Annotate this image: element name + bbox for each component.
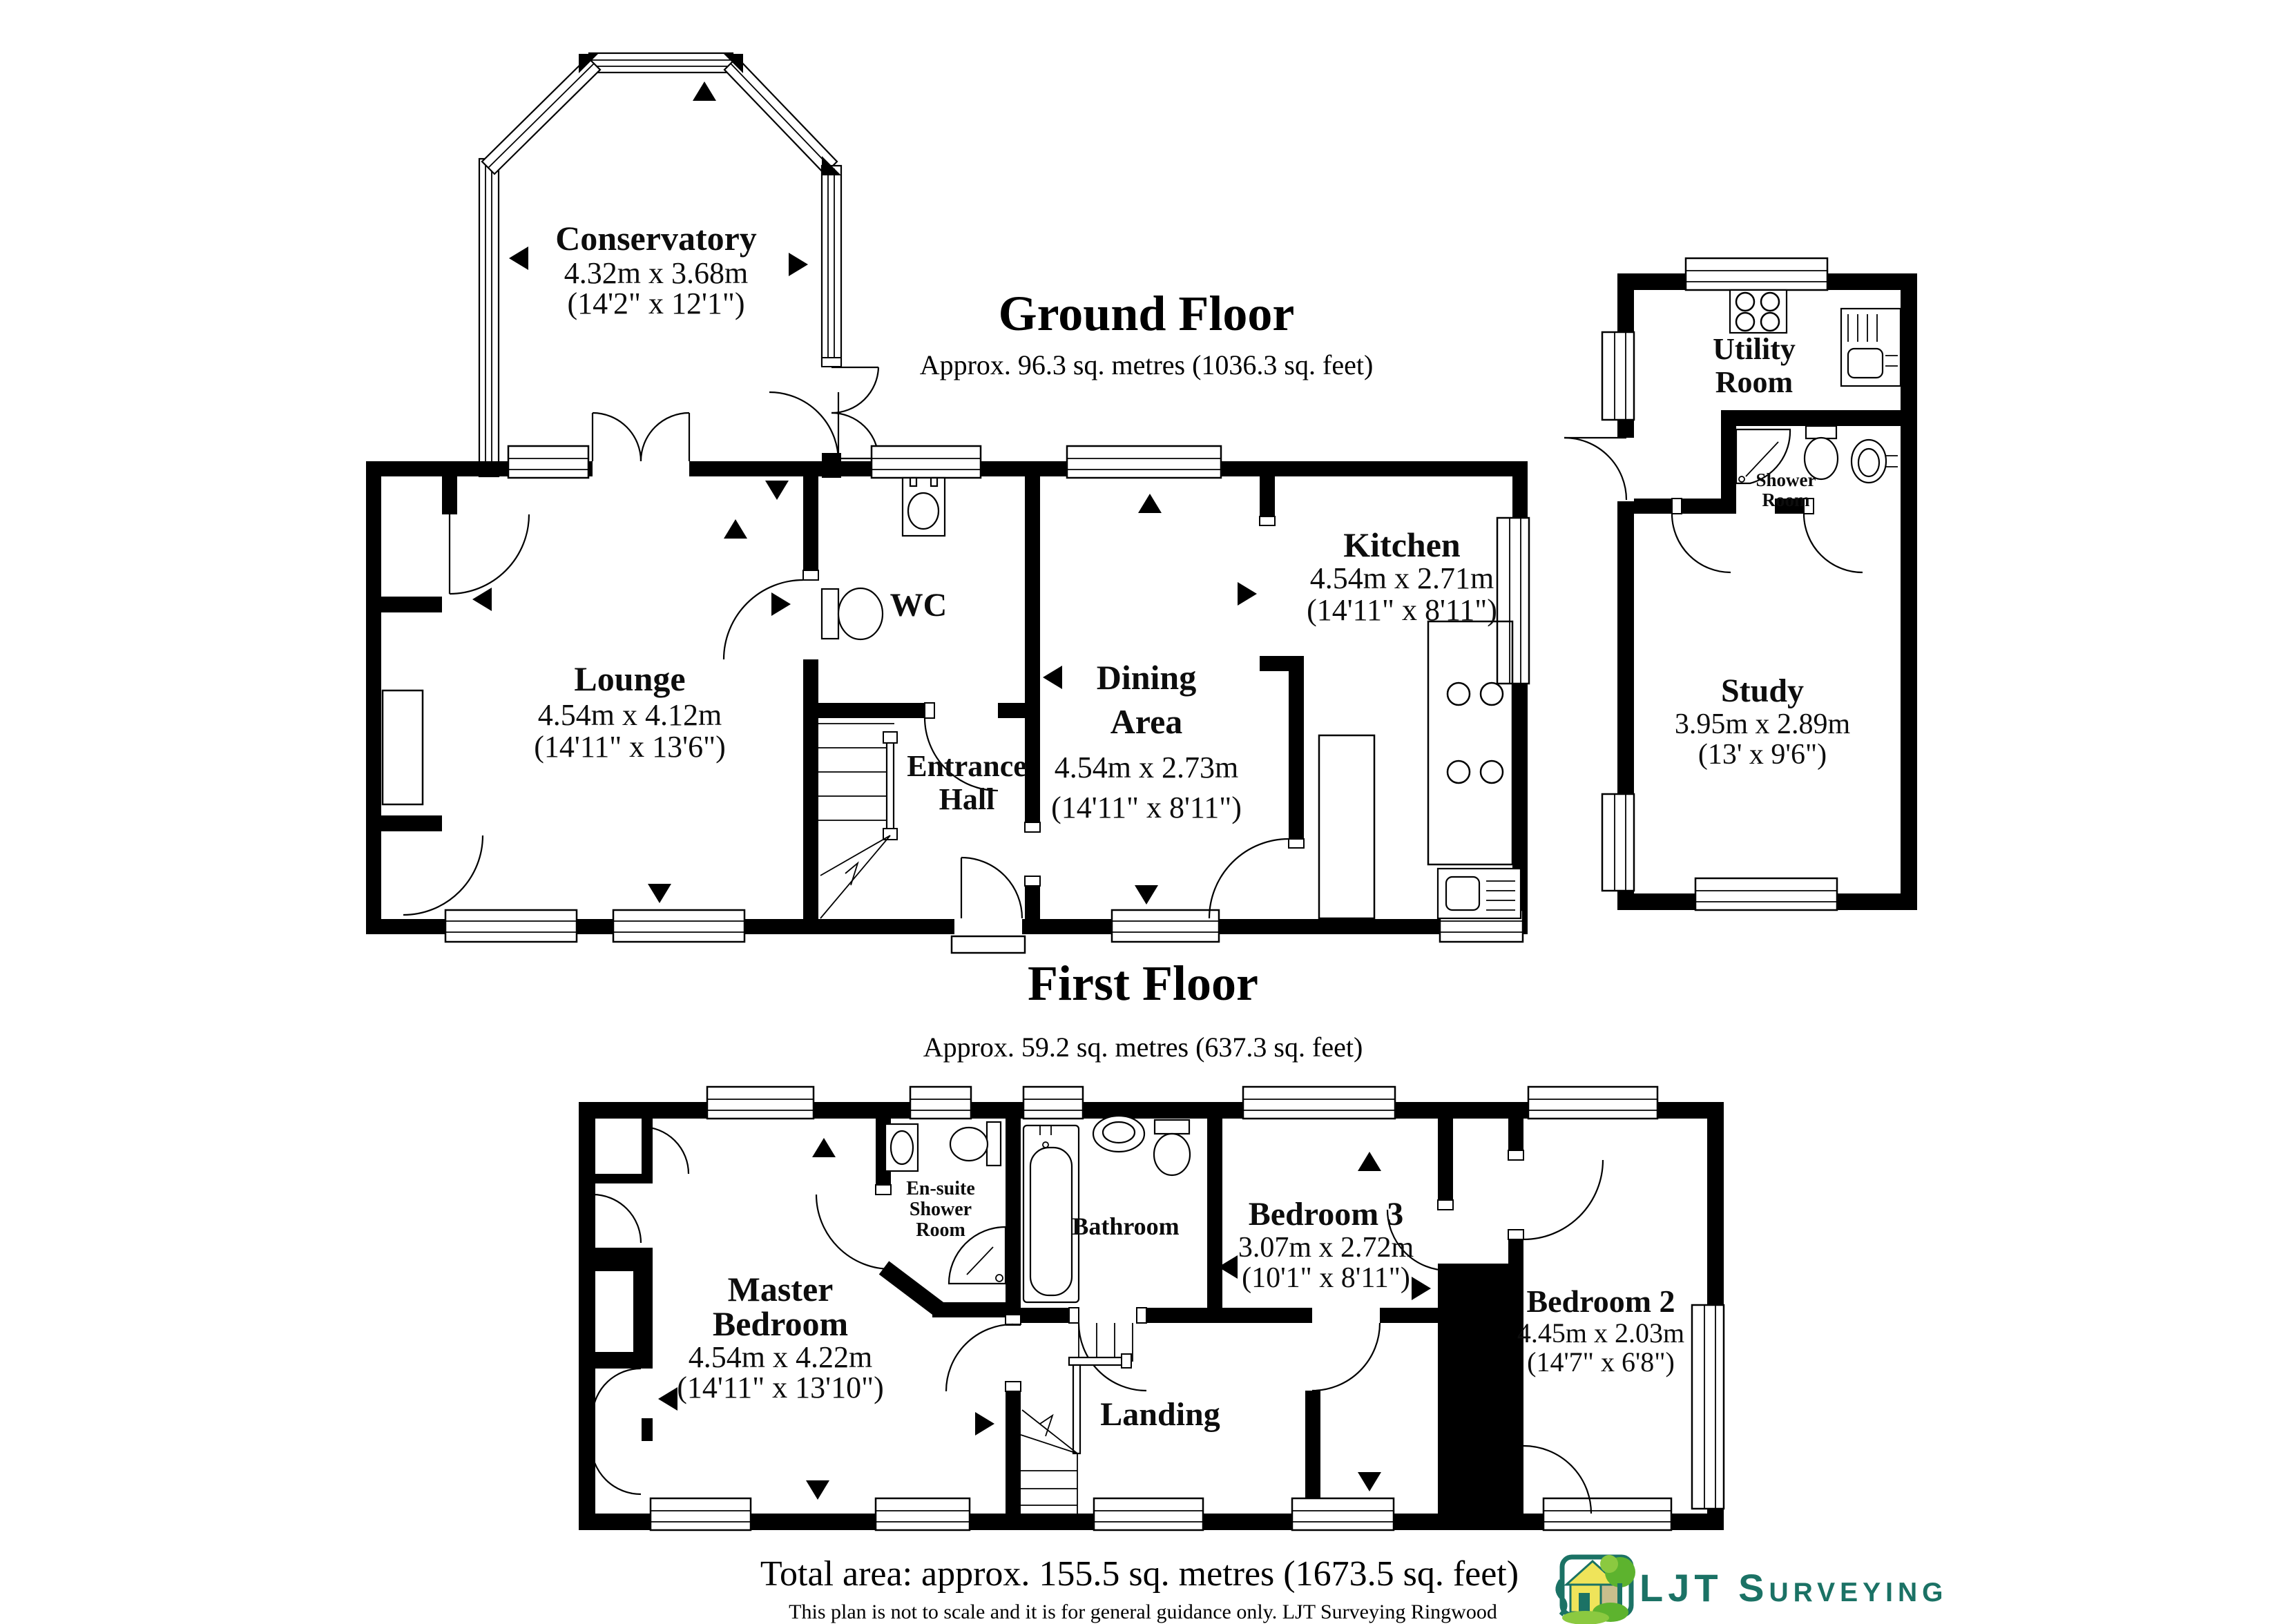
bedroom2-door-arc — [1523, 1160, 1603, 1239]
svg-text:Study: Study — [1721, 673, 1804, 709]
floorplan-drawing: Conservatory 4.32m x 3.68m (14'2" x 12'1… — [0, 0, 2279, 1624]
utility-hob-icon — [1730, 290, 1787, 333]
room-label-bedroom2: Bedroom 2 4.45m x 2.03m (14'7" x 6'8") — [1517, 1284, 1684, 1377]
room-label-master: Master Bedroom 4.54m x 4.22m (14'11" x 1… — [677, 1270, 883, 1404]
svg-text:(14'11" x 8'11"): (14'11" x 8'11") — [1307, 593, 1497, 627]
svg-text:Landing: Landing — [1100, 1396, 1220, 1433]
room-label-bedroom3: Bedroom 3 3.07m x 2.72m (10'1" x 8'11") — [1238, 1196, 1414, 1294]
room-label-utility: Utility Room — [1713, 332, 1796, 399]
svg-text:Master: Master — [728, 1270, 834, 1308]
svg-text:WC: WC — [890, 587, 948, 623]
svg-text:Room: Room — [916, 1219, 965, 1241]
kitchen-door-arc — [1209, 839, 1289, 918]
room-label-bathroom: Bathroom — [1072, 1212, 1179, 1240]
logo-door — [1579, 1593, 1590, 1612]
lounge-furniture — [383, 690, 423, 804]
room-label-shower-room: Shower Room — [1756, 470, 1816, 510]
svg-text:4.32m x 3.68m: 4.32m x 3.68m — [564, 256, 748, 290]
svg-text:Shower: Shower — [910, 1199, 972, 1220]
room-label-landing: Landing — [1100, 1396, 1220, 1433]
hob-icon — [1448, 683, 1503, 783]
svg-text:4.54m x 4.12m: 4.54m x 4.12m — [538, 698, 722, 732]
svg-text:Kitchen: Kitchen — [1343, 525, 1461, 564]
kitchen-counter — [1319, 621, 1521, 918]
ground-floor: Conservatory 4.32m x 3.68m (14'2" x 12'1… — [366, 53, 1917, 953]
svg-text:Bedroom 3: Bedroom 3 — [1249, 1196, 1403, 1232]
master-door-arc — [946, 1324, 1013, 1391]
svg-text:Conservatory: Conservatory — [555, 219, 757, 258]
svg-text:En-suite: En-suite — [906, 1178, 975, 1199]
svg-text:Bedroom 2: Bedroom 2 — [1526, 1284, 1675, 1319]
kitchen-sink-icon — [1438, 869, 1521, 918]
utility-sink-icon — [1841, 309, 1901, 386]
ensuite-toilet-icon — [950, 1122, 1001, 1166]
footer: Total area: approx. 155.5 sq. metres (16… — [760, 1554, 1948, 1624]
svg-text:3.07m x 2.72m: 3.07m x 2.72m — [1238, 1232, 1414, 1264]
room-label-dining: Dining Area 4.54m x 2.73m (14'11" x 8'11… — [1051, 658, 1242, 824]
front-door-arc — [961, 858, 1022, 918]
bathroom-sink-icon — [1093, 1116, 1144, 1152]
wc-toilet-icon — [822, 588, 883, 639]
bath-icon — [1023, 1125, 1079, 1302]
french-door-opening — [593, 460, 689, 478]
svg-text:(13' x 9'6"): (13' x 9'6") — [1698, 739, 1827, 771]
outbuilding: Utility Room Shower Room Study 3.95m x 2… — [1564, 258, 1917, 910]
svg-text:(14'11" x 13'10"): (14'11" x 13'10") — [677, 1371, 883, 1404]
svg-text:3.95m x 2.89m: 3.95m x 2.89m — [1675, 708, 1851, 740]
svg-text:Bathroom: Bathroom — [1072, 1212, 1179, 1240]
landing-lobby-door-arc — [1312, 1323, 1380, 1391]
logo-wordmark: LJT Surveying — [1639, 1566, 1948, 1609]
room-label-kitchen: Kitchen 4.54m x 2.71m (14'11" x 8'11") — [1307, 525, 1497, 627]
svg-text:(14'11" x 8'11"): (14'11" x 8'11") — [1051, 791, 1242, 824]
svg-text:4.54m x 4.22m: 4.54m x 4.22m — [689, 1340, 872, 1374]
bathroom-toilet-icon — [1154, 1120, 1190, 1175]
chimney-mass — [1438, 1264, 1523, 1514]
conservatory-door-arc — [769, 392, 838, 461]
front-door-step — [952, 936, 1025, 953]
svg-text:Area: Area — [1110, 702, 1183, 741]
svg-text:Entrance: Entrance — [907, 749, 1027, 783]
svg-text:Room: Room — [1762, 490, 1810, 510]
svg-text:Utility: Utility — [1713, 332, 1796, 366]
svg-text:Lounge: Lounge — [574, 659, 685, 698]
disclaimer-text: This plan is not to scale and it is for … — [789, 1601, 1497, 1623]
first-floor-title: First Floor — [1028, 956, 1258, 1011]
wc-sink-icon — [903, 478, 945, 536]
first-floor-subtitle: Approx. 59.2 sq. metres (637.3 sq. feet) — [923, 1032, 1363, 1063]
room-label-entrance-hall: Entrance Hall — [907, 749, 1027, 816]
ljt-logo: LJT Surveying — [1557, 1555, 1948, 1624]
svg-text:(14'11" x 13'6"): (14'11" x 13'6") — [534, 730, 725, 764]
svg-text:Dining: Dining — [1097, 658, 1197, 697]
stairs-icon — [818, 724, 897, 918]
room-label-conservatory: Conservatory 4.32m x 3.68m (14'2" x 12'1… — [555, 219, 757, 320]
svg-text:Bedroom: Bedroom — [713, 1304, 848, 1343]
ground-interior-walls — [381, 476, 1304, 919]
svg-text:Hall: Hall — [939, 782, 995, 816]
ground-floor-title: Ground Floor — [999, 286, 1295, 341]
room-label-ensuite: En-suite Shower Room — [906, 1178, 975, 1241]
svg-text:4.45m x 2.03m: 4.45m x 2.03m — [1517, 1317, 1684, 1348]
svg-text:Room: Room — [1715, 365, 1793, 399]
room-label-lounge: Lounge 4.54m x 4.12m (14'11" x 13'6") — [534, 659, 725, 764]
room-label-study: Study 3.95m x 2.89m (13' x 9'6") — [1675, 673, 1851, 771]
ensuite-door-arc — [816, 1195, 891, 1269]
svg-text:(10'1" x 8'11"): (10'1" x 8'11") — [1242, 1262, 1410, 1294]
floorplan-page: { "ground_floor": { "title": "Ground Flo… — [0, 0, 2279, 1624]
svg-text:(14'7" x 6'8"): (14'7" x 6'8") — [1527, 1346, 1675, 1377]
total-area-text: Total area: approx. 155.5 sq. metres (16… — [760, 1554, 1519, 1594]
svg-text:4.54m x 2.71m: 4.54m x 2.71m — [1310, 561, 1494, 595]
svg-text:(14'2" x 12'1"): (14'2" x 12'1") — [567, 287, 744, 320]
first-floor: Master Bedroom 4.54m x 4.22m (14'11" x 1… — [579, 1087, 1724, 1530]
svg-text:Shower: Shower — [1756, 470, 1816, 490]
lounge-door-arc — [724, 580, 803, 659]
front-door-opening — [954, 917, 1022, 936]
shower-sink-icon — [1852, 440, 1898, 483]
ground-floor-subtitle: Approx. 96.3 sq. metres (1036.3 sq. feet… — [920, 349, 1374, 380]
room-label-wc: WC — [890, 587, 948, 623]
svg-text:4.54m x 2.73m: 4.54m x 2.73m — [1055, 751, 1238, 784]
